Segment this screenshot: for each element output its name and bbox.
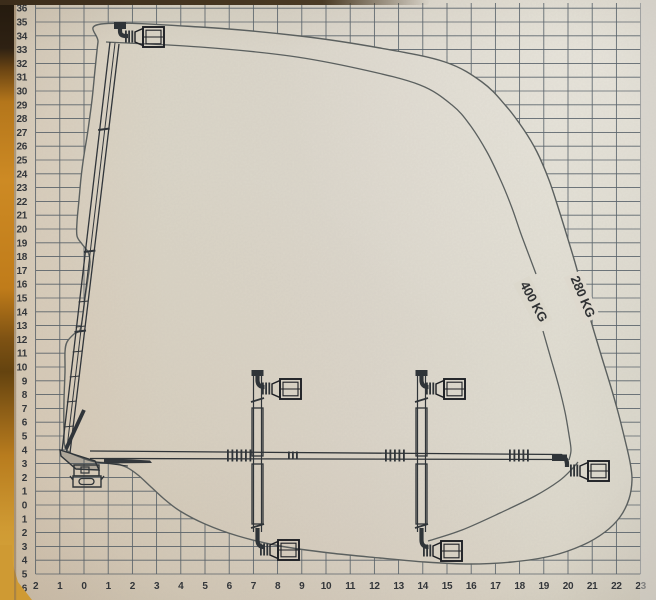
svg-text:0: 0 bbox=[81, 581, 87, 592]
svg-text:15: 15 bbox=[442, 581, 453, 592]
svg-text:27: 27 bbox=[16, 128, 27, 139]
svg-text:13: 13 bbox=[16, 321, 27, 332]
svg-text:9: 9 bbox=[22, 376, 28, 387]
svg-text:7: 7 bbox=[22, 404, 28, 415]
svg-text:13: 13 bbox=[393, 581, 404, 592]
svg-text:24: 24 bbox=[16, 169, 27, 180]
svg-text:11: 11 bbox=[17, 349, 28, 360]
svg-text:11: 11 bbox=[345, 581, 356, 592]
svg-text:12: 12 bbox=[16, 335, 27, 346]
svg-text:1: 1 bbox=[22, 487, 28, 498]
svg-text:20: 20 bbox=[16, 225, 27, 236]
svg-text:4: 4 bbox=[22, 445, 28, 456]
svg-text:25: 25 bbox=[16, 156, 27, 167]
svg-text:3: 3 bbox=[22, 542, 28, 553]
svg-text:36: 36 bbox=[16, 4, 27, 15]
svg-text:10: 10 bbox=[321, 581, 332, 592]
svg-text:14: 14 bbox=[16, 307, 27, 318]
svg-text:19: 19 bbox=[539, 581, 550, 592]
svg-text:19: 19 bbox=[16, 238, 27, 249]
svg-text:22: 22 bbox=[16, 197, 27, 208]
svg-text:0: 0 bbox=[22, 501, 28, 512]
svg-text:14: 14 bbox=[418, 581, 429, 592]
svg-text:5: 5 bbox=[202, 581, 208, 592]
svg-text:26: 26 bbox=[16, 142, 27, 153]
svg-text:17: 17 bbox=[490, 581, 501, 592]
svg-text:3: 3 bbox=[154, 581, 160, 592]
svg-text:6: 6 bbox=[227, 581, 233, 592]
svg-text:34: 34 bbox=[16, 31, 27, 42]
svg-text:23: 23 bbox=[16, 183, 27, 194]
svg-text:30: 30 bbox=[16, 87, 27, 98]
svg-text:28: 28 bbox=[16, 114, 27, 125]
svg-text:9: 9 bbox=[299, 581, 305, 592]
svg-text:32: 32 bbox=[16, 59, 27, 70]
svg-text:17: 17 bbox=[16, 266, 27, 277]
svg-text:1: 1 bbox=[22, 514, 28, 525]
svg-text:8: 8 bbox=[22, 390, 28, 401]
svg-text:7: 7 bbox=[251, 581, 257, 592]
svg-text:16: 16 bbox=[16, 280, 27, 291]
svg-text:15: 15 bbox=[16, 294, 27, 305]
svg-text:20: 20 bbox=[563, 581, 574, 592]
svg-text:31: 31 bbox=[16, 73, 27, 84]
svg-text:4: 4 bbox=[178, 581, 184, 592]
svg-text:5: 5 bbox=[22, 432, 28, 443]
svg-text:3: 3 bbox=[22, 459, 28, 470]
svg-text:2: 2 bbox=[33, 581, 39, 592]
svg-text:18: 18 bbox=[16, 252, 27, 263]
svg-text:1: 1 bbox=[57, 581, 63, 592]
svg-text:2: 2 bbox=[22, 473, 28, 484]
svg-text:35: 35 bbox=[16, 18, 27, 29]
svg-text:10: 10 bbox=[16, 363, 27, 374]
svg-text:5: 5 bbox=[22, 570, 28, 581]
svg-text:18: 18 bbox=[514, 581, 525, 592]
svg-text:6: 6 bbox=[22, 418, 28, 429]
svg-text:16: 16 bbox=[466, 581, 477, 592]
svg-text:2: 2 bbox=[22, 528, 28, 539]
svg-text:1: 1 bbox=[106, 581, 112, 592]
svg-text:21: 21 bbox=[587, 581, 598, 592]
svg-text:22: 22 bbox=[611, 581, 622, 592]
svg-text:2: 2 bbox=[130, 581, 136, 592]
svg-text:12: 12 bbox=[369, 581, 380, 592]
svg-text:21: 21 bbox=[16, 211, 27, 222]
svg-text:29: 29 bbox=[16, 100, 27, 111]
svg-text:4: 4 bbox=[22, 556, 28, 567]
svg-text:33: 33 bbox=[16, 45, 27, 56]
svg-text:8: 8 bbox=[275, 581, 281, 592]
